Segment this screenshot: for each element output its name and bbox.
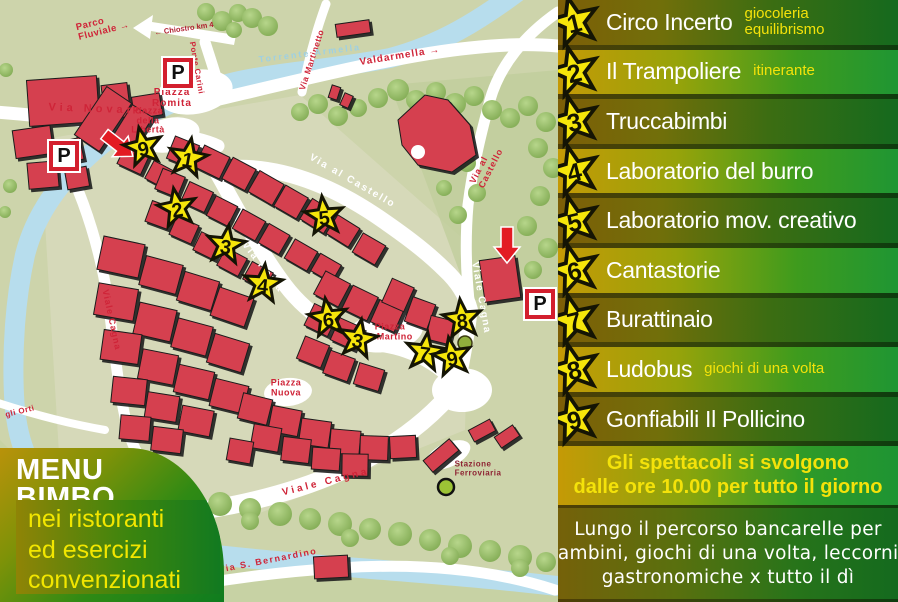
flyer-page: ← Chiostro km 4Parco Fluviale →Ponte Car… [0,0,898,602]
map-star-9: 9 [425,330,478,383]
legend-title: Burattinaio [606,306,713,333]
legend-note: giocoleria equilibrismo [744,6,840,40]
svg-text:5: 5 [318,207,331,230]
legend-panel: 1 Circo Incerto giocoleria equilibrismo … [558,0,898,602]
legend-note: giochi di una volta [704,361,824,378]
legend-row-3: 3 Truccabimbi [558,99,898,144]
legend-row-1: 1 Circo Incerto giocoleria equilibrismo [558,0,898,45]
parking-sign: P [525,289,555,319]
legend-row-6: 6 Cantastorie [558,248,898,293]
legend-note: itinerante [753,63,815,80]
legend-row-4: 4 Laboratorio del burro [558,149,898,194]
legend-title: Truccabimbi [606,108,727,135]
legend-row-8: 8 Ludobus giochi di una volta [558,347,898,392]
street-market-note: Lungo il percorso bancarelle per bambini… [558,508,898,599]
map-star-1: 1 [161,131,214,184]
legend-title: Laboratorio del burro [606,158,813,185]
legend-title: Cantastorie [606,257,720,284]
legend-title: Gonfiabili Il Pollicino [606,406,805,433]
legend-row-9: 9 Gonfiabili Il Pollicino [558,397,898,442]
parking-sign: P [163,58,193,88]
map-star-4: 4 [238,259,289,310]
legend-title: Laboratorio mov. creativo [606,207,856,234]
map-star-2: 2 [150,181,203,234]
legend-title: Il Trampoliere [606,58,741,85]
green-dot-marker [438,479,454,495]
star-9-icon: 9 [558,390,603,448]
map-star-5: 5 [299,191,350,242]
legend-row-7: 7 Burattinaio [558,298,898,343]
map-star-3: 3 [331,312,384,365]
schedule-note: Gli spettacoli si svolgono dalle ore 10.… [558,446,898,505]
legend-row-2: 2 Il Trampoliere itinerante [558,50,898,95]
legend-title: Ludobus [606,356,692,383]
menu-bimbo-body: nei ristoranti ed esercizi convenzionati [16,500,220,594]
parking-sign: P [49,141,79,171]
legend-title: Circo Incerto [606,9,732,36]
town-map: ← Chiostro km 4Parco Fluviale →Ponte Car… [0,0,558,602]
legend-row-5: 5 Laboratorio mov. creativo [558,198,898,243]
